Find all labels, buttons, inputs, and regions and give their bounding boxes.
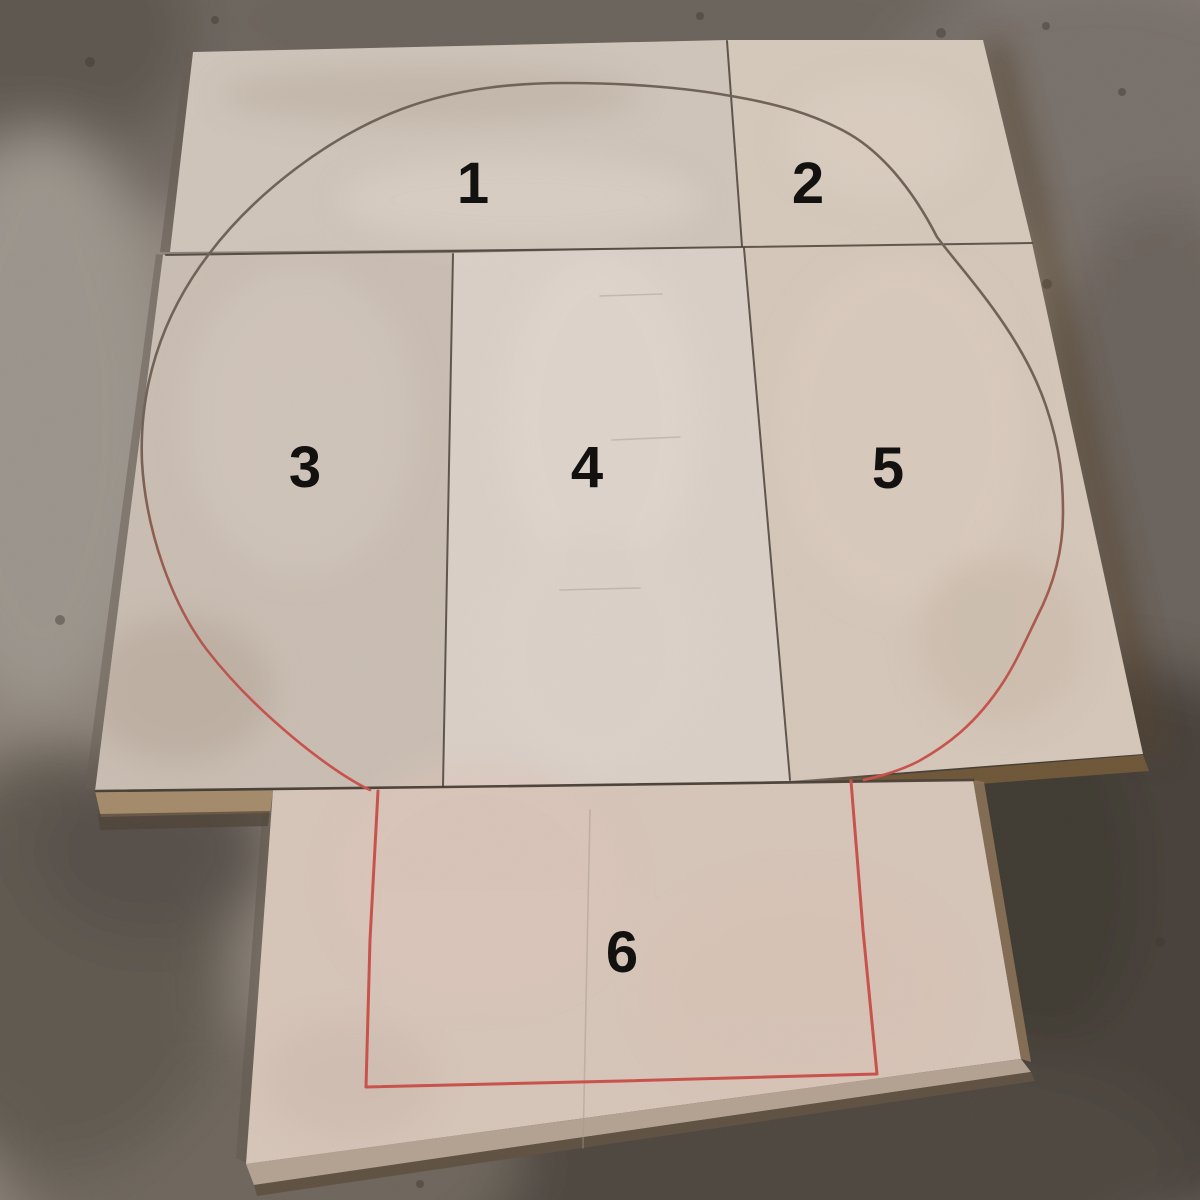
photo-grain xyxy=(0,0,1200,1200)
photo-scene: 1 2 3 4 5 6 xyxy=(0,0,1200,1200)
workshop-photo: 1 2 3 4 5 6 xyxy=(0,0,1200,1200)
